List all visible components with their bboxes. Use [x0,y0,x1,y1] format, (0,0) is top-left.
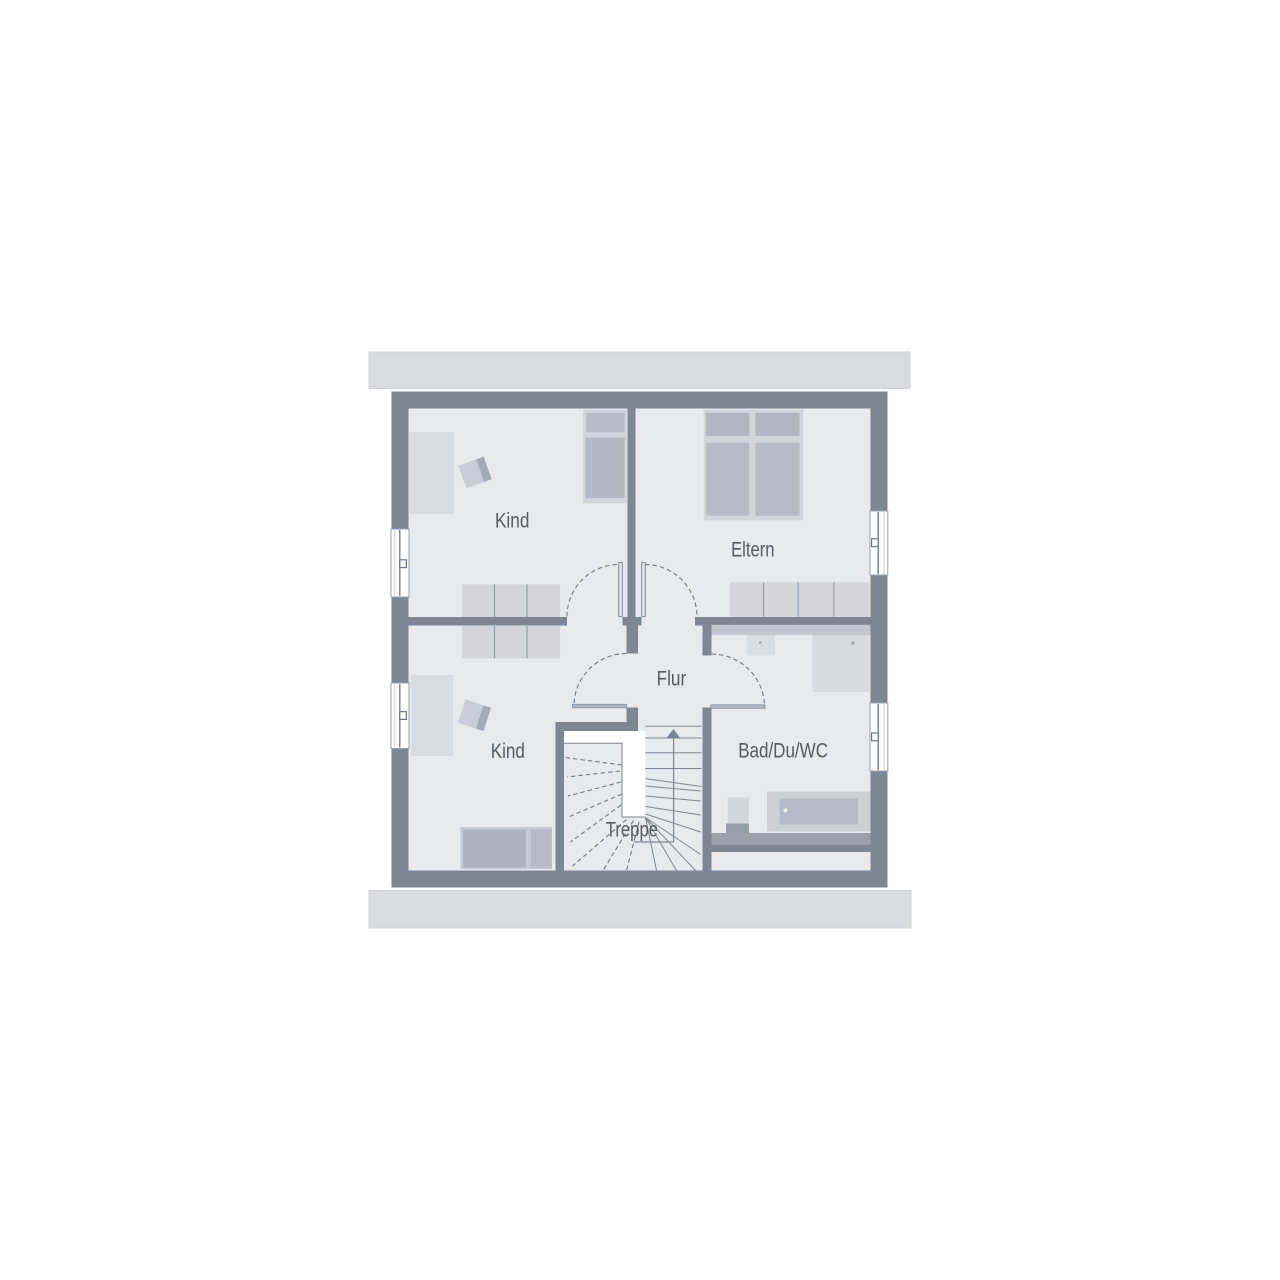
svg-text:Treppe: Treppe [606,819,658,842]
svg-text:Kind: Kind [495,510,530,533]
svg-text:Eltern: Eltern [731,538,774,561]
svg-text:Bad/Du/WC: Bad/Du/WC [738,739,828,762]
svg-text:Kind: Kind [491,740,525,763]
svg-text:Flur: Flur [657,668,687,691]
